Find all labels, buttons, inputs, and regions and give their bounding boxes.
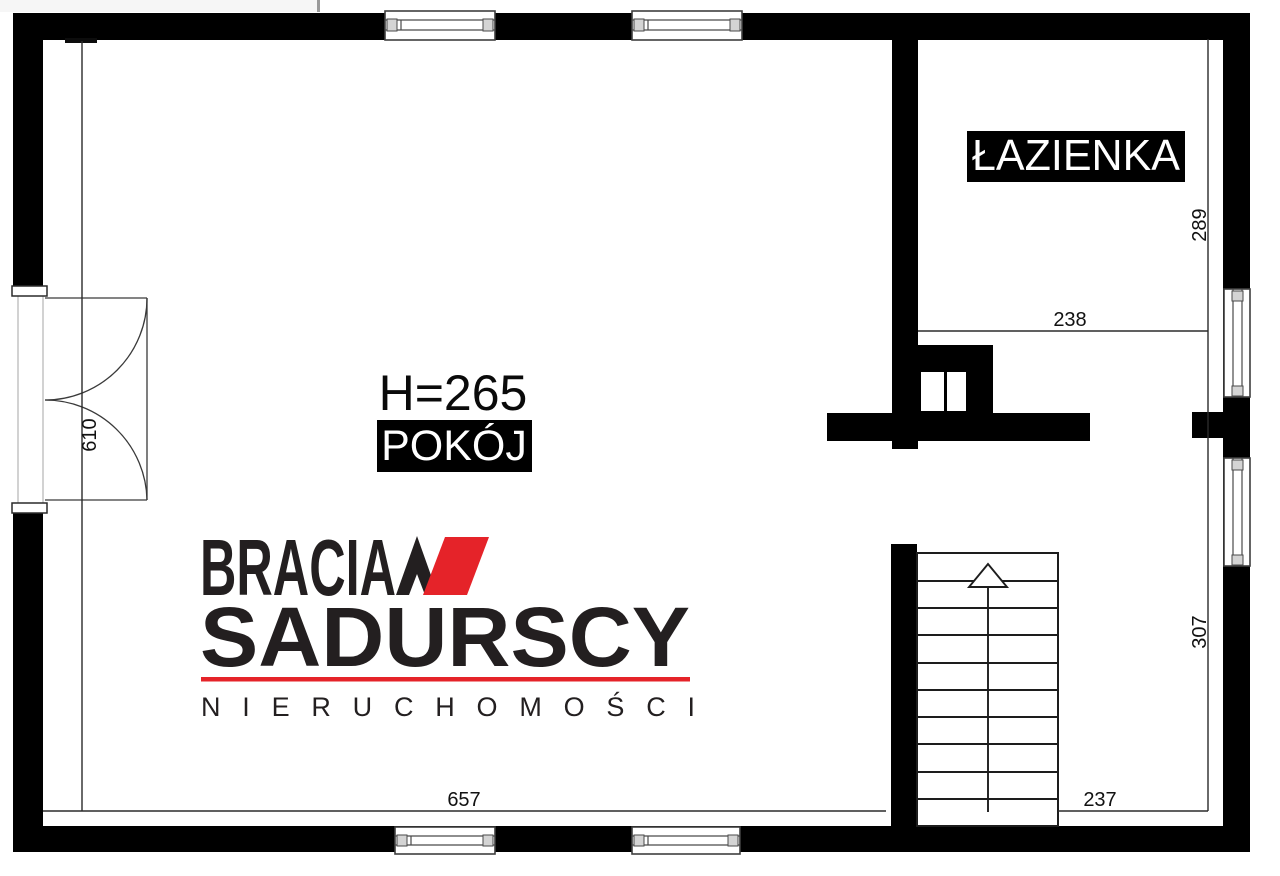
room-height-label: H=265	[379, 365, 528, 421]
dim-label-238: 238	[1053, 309, 1086, 331]
room-label-lazienka: ŁAZIENKA	[967, 131, 1185, 182]
chimney-vent-right	[947, 372, 966, 411]
chimney-vent-left	[921, 372, 944, 411]
floorplan-drawing: 610 657 237 238 289 307 H=265 POKÓJ ŁAZI…	[0, 0, 1280, 876]
dim-label-289: 289	[1189, 208, 1211, 241]
dim-label-657: 657	[447, 789, 480, 811]
floorplan-page: 610 657 237 238 289 307 H=265 POKÓJ ŁAZI…	[0, 0, 1280, 876]
dim-label-237: 237	[1083, 789, 1116, 811]
chimney-vents	[921, 372, 966, 411]
window-bottom-1	[395, 827, 495, 854]
room-label-text: POKÓJ	[381, 422, 527, 470]
window-bottom-2	[632, 827, 740, 854]
bathroom-label-text: ŁAZIENKA	[972, 131, 1181, 180]
door-jamb-bottom	[12, 503, 47, 513]
room-label-pokoj: POKÓJ	[377, 420, 532, 472]
staircase	[917, 553, 1058, 826]
scan-artifact-strip	[0, 0, 320, 12]
door-jamb-top	[12, 286, 47, 296]
wall-right	[1223, 13, 1250, 852]
wall-staircase	[891, 544, 917, 830]
wall-below-bathroom	[827, 413, 1090, 441]
dim-tick-top-left	[65, 38, 97, 43]
logo-word-sadurscy: SADURSCY	[200, 590, 690, 684]
window-top-2	[632, 11, 742, 40]
window-right-2	[1224, 458, 1250, 566]
window-top-1	[385, 11, 495, 40]
window-right-1	[1224, 289, 1250, 397]
logo-red-underline	[201, 677, 690, 682]
dim-label-610: 610	[79, 418, 101, 451]
dim-label-307: 307	[1189, 615, 1211, 648]
wall-divider-bathroom	[892, 37, 918, 449]
logo-word-nieruchomosci: NIERUCHOMOŚCI	[201, 690, 695, 722]
